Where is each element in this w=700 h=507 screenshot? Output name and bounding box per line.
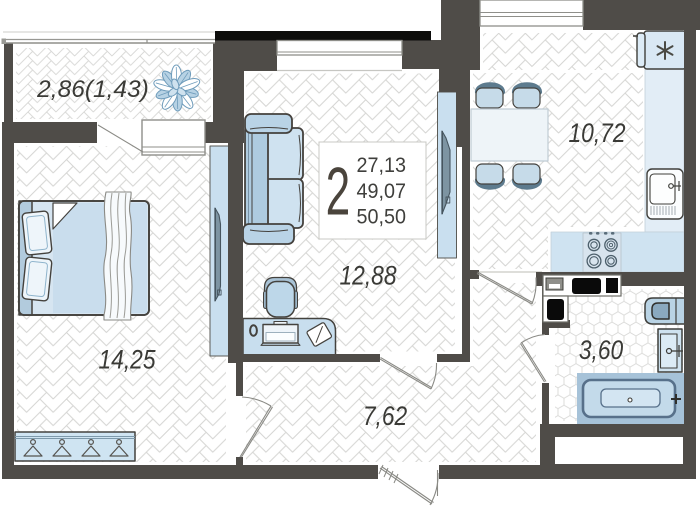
- svg-text:12,88: 12,88: [339, 262, 396, 291]
- svg-text:14,25: 14,25: [98, 346, 155, 375]
- svg-text:2,86(1,43): 2,86(1,43): [36, 76, 149, 103]
- svg-text:2: 2: [326, 154, 351, 230]
- svg-text:49,07: 49,07: [357, 179, 406, 203]
- svg-text:3,60: 3,60: [579, 336, 624, 365]
- svg-text:7,62: 7,62: [363, 402, 408, 431]
- svg-text:10,72: 10,72: [568, 119, 625, 148]
- svg-text:50,50: 50,50: [357, 205, 406, 229]
- svg-text:27,13: 27,13: [357, 153, 406, 177]
